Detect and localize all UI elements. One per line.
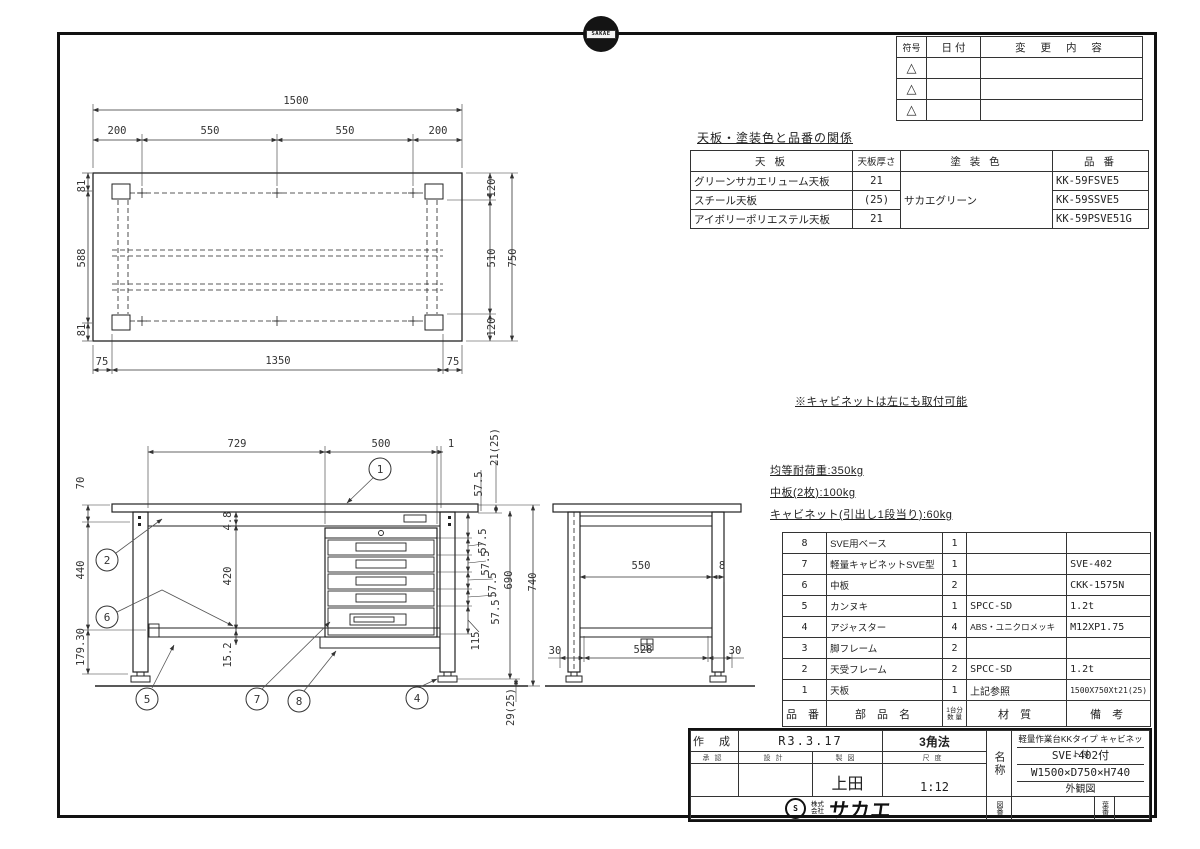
part-no-cell: 4 bbox=[783, 617, 827, 638]
finish-header-partno: 品 番 bbox=[1053, 151, 1149, 172]
part-no-cell: 2 bbox=[783, 659, 827, 680]
part-name-cell: 天受フレーム bbox=[827, 659, 943, 680]
parts-header-no: 品 番 bbox=[783, 701, 827, 727]
parts-row: 7 軽量キャビネットSVE型 1 SVE-402 bbox=[783, 554, 1151, 575]
balloon-leaders bbox=[116, 477, 437, 692]
dim-label: 750 bbox=[507, 249, 519, 268]
part-material-cell: SPCC-SD bbox=[967, 596, 1067, 617]
part-qty-cell: 1 bbox=[943, 596, 967, 617]
company-prefix-line1: 株式 bbox=[811, 801, 824, 808]
created-label: 作 成 bbox=[690, 730, 739, 752]
revision-date-cell bbox=[927, 58, 981, 79]
dim-label: 81 bbox=[76, 324, 88, 337]
finish-thickness-cell: (25) bbox=[853, 191, 901, 210]
part-material-cell bbox=[967, 638, 1067, 659]
dim-label: 1350 bbox=[265, 355, 290, 367]
dim-label: 21(25) bbox=[489, 428, 501, 466]
finish-thickness-cell: 21 bbox=[853, 172, 901, 191]
product-model: SVE-402付 bbox=[1017, 748, 1143, 765]
part-material-cell: SPCC-SD bbox=[967, 659, 1067, 680]
parts-row: 2 天受フレーム 2 SPCC-SD 1.2t bbox=[783, 659, 1151, 680]
top-view-dim-lines bbox=[82, 104, 518, 374]
dim-label: 1500 bbox=[283, 95, 308, 107]
name-label: 名称 bbox=[986, 730, 1012, 797]
revision-row: △ bbox=[897, 79, 1143, 100]
revision-triangle-icon: △ bbox=[897, 79, 927, 100]
revision-content-cell bbox=[981, 58, 1143, 79]
dim-label: 57.5 bbox=[473, 471, 485, 496]
parts-header-material: 材 質 bbox=[967, 701, 1067, 727]
dim-label: 29(25) bbox=[505, 688, 517, 726]
product-name-block: 軽量作業台KKタイプ キャビネット付 SVE-402付 W1500×D750×H… bbox=[1011, 730, 1150, 797]
revision-triangle-icon: △ bbox=[897, 58, 927, 79]
revision-row: △ bbox=[897, 58, 1143, 79]
top-view-geometry bbox=[93, 173, 462, 341]
part-remark-cell: M12XP1.75 bbox=[1067, 617, 1151, 638]
dim-label: 510 bbox=[486, 249, 498, 268]
dim-label: 57.5 bbox=[480, 550, 492, 575]
product-size: W1500×D750×H740 bbox=[1017, 765, 1143, 782]
dim-label: 200 bbox=[429, 125, 448, 137]
revision-date-cell bbox=[927, 100, 981, 121]
part-name-cell: 中板 bbox=[827, 575, 943, 596]
balloon-label: 7 bbox=[254, 693, 261, 706]
load-note: 均等耐荷重:350kg bbox=[770, 462, 864, 478]
part-no-cell: 8 bbox=[783, 533, 827, 554]
part-name-cell: 軽量キャビネットSVE型 bbox=[827, 554, 943, 575]
part-remark-cell: 1.2t bbox=[1067, 596, 1151, 617]
part-remark-cell: 1.2t bbox=[1067, 659, 1151, 680]
balloon-label: 8 bbox=[296, 695, 303, 708]
company-name: サカエ bbox=[827, 796, 894, 820]
dim-label: 30 bbox=[549, 645, 562, 657]
load-note: 中板(2枚):100kg bbox=[770, 484, 855, 500]
finish-top-cell: グリーンサカエリューム天板 bbox=[691, 172, 853, 191]
finish-header-thickness: 天板厚さ bbox=[853, 151, 901, 172]
parts-row: 6 中板 2 CKK-1575N bbox=[783, 575, 1151, 596]
part-remark-cell: 1500X750Xt21(25) bbox=[1067, 680, 1151, 701]
part-remark-cell bbox=[1067, 533, 1151, 554]
balloon-label: 2 bbox=[104, 554, 111, 567]
dim-label: 81 bbox=[76, 180, 88, 193]
company-logo-row: S 株式 会社 サカエ bbox=[690, 796, 987, 820]
drawing-type: 外観図 bbox=[1017, 782, 1143, 797]
parts-header-name: 部 品 名 bbox=[827, 701, 943, 727]
part-remark-cell: SVE-402 bbox=[1067, 554, 1151, 575]
part-name-cell: 天板 bbox=[827, 680, 943, 701]
finish-partno-cell: KK-59SSVE5 bbox=[1053, 191, 1149, 210]
drawing-number-cell bbox=[1011, 796, 1095, 820]
parts-header-qty-line1: 1台分 bbox=[944, 707, 965, 714]
front-view-dim-lines bbox=[82, 446, 540, 702]
dim-label: 729 bbox=[228, 438, 247, 450]
finish-header-color: 塗 装 色 bbox=[901, 151, 1053, 172]
part-name-cell: 脚フレーム bbox=[827, 638, 943, 659]
part-no-cell: 7 bbox=[783, 554, 827, 575]
revision-row: △ bbox=[897, 100, 1143, 121]
scale-value: 1:12 bbox=[882, 763, 987, 797]
parts-row: 3 脚フレーム 2 bbox=[783, 638, 1151, 659]
revision-header-date: 日 付 bbox=[927, 37, 981, 58]
dim-label: 57.5 bbox=[490, 599, 502, 624]
cabinet-note: ※キャビネットは左にも取付可能 bbox=[795, 393, 968, 409]
drafter-name: 上田 bbox=[812, 763, 883, 797]
dim-label: 1 bbox=[448, 438, 454, 450]
dim-label: 8 bbox=[719, 560, 725, 572]
finish-table: 天 板 天板厚さ 塗 装 色 品 番 グリーンサカエリューム天板 21 サカエグ… bbox=[690, 150, 1149, 229]
company-prefix-line2: 会社 bbox=[811, 808, 824, 815]
dim-label: 75 bbox=[447, 356, 460, 368]
finish-top-cell: スチール天板 bbox=[691, 191, 853, 210]
dim-label: 690 bbox=[503, 571, 515, 590]
balloon-label: 6 bbox=[104, 611, 111, 624]
dim-label: 57.5 bbox=[487, 572, 499, 597]
dim-label: 115 bbox=[470, 632, 482, 651]
dim-label: 30 bbox=[729, 645, 742, 657]
design-cell bbox=[738, 763, 813, 797]
revision-content-cell bbox=[981, 100, 1143, 121]
parts-header-remark: 備 考 bbox=[1067, 701, 1151, 727]
balloon-label: 1 bbox=[377, 463, 384, 476]
company-prefix: 株式 会社 bbox=[811, 801, 824, 815]
sheet-number-cell bbox=[1114, 796, 1150, 820]
dim-label: 550 bbox=[632, 560, 651, 572]
finish-partno-cell: KK-59PSVE51G bbox=[1053, 210, 1149, 229]
part-remark-cell bbox=[1067, 638, 1151, 659]
dim-label: 15.2 bbox=[222, 642, 234, 667]
part-qty-cell: 1 bbox=[943, 533, 967, 554]
dim-label: 120 bbox=[486, 179, 498, 198]
product-title: 軽量作業台KKタイプ キャビネット付 bbox=[1017, 732, 1143, 748]
part-no-cell: 3 bbox=[783, 638, 827, 659]
dim-label: 500 bbox=[372, 438, 391, 450]
side-view-geometry bbox=[545, 504, 755, 686]
revision-header-content: 変 更 内 容 bbox=[981, 37, 1143, 58]
part-remark-cell: CKK-1575N bbox=[1067, 575, 1151, 596]
part-no-cell: 1 bbox=[783, 680, 827, 701]
part-qty-cell: 2 bbox=[943, 575, 967, 596]
part-material-cell bbox=[967, 575, 1067, 596]
dim-label: 588 bbox=[76, 249, 88, 268]
part-qty-cell: 1 bbox=[943, 680, 967, 701]
parts-table: 8 SVE用ベース 1 7 軽量キャビネットSVE型 1 SVE-402 6 中… bbox=[782, 532, 1151, 727]
finish-header-top: 天 板 bbox=[691, 151, 853, 172]
finish-thickness-cell: 21 bbox=[853, 210, 901, 229]
dim-label: 740 bbox=[527, 573, 539, 592]
dim-label: 550 bbox=[336, 125, 355, 137]
title-block: 作 成 R3.3.17 3角法 承認 設計 製図 尺度 上田 1:12 S 株式… bbox=[688, 728, 1152, 822]
part-material-cell bbox=[967, 554, 1067, 575]
parts-header-qty: 1台分 数 量 bbox=[943, 701, 967, 727]
dim-label: 550 bbox=[201, 125, 220, 137]
drawing-sheet: SAKAE bbox=[0, 0, 1200, 849]
created-date: R3.3.17 bbox=[738, 730, 883, 752]
dim-label: 179.30 bbox=[75, 628, 87, 666]
dim-label: 75 bbox=[96, 356, 109, 368]
part-material-cell: ABS・ユニクロメッキ bbox=[967, 617, 1067, 638]
revision-table: 符号 日 付 変 更 内 容 △ △ △ bbox=[896, 36, 1143, 121]
projection-method: 3角法 bbox=[882, 730, 987, 752]
dim-label: 440 bbox=[75, 561, 87, 580]
revision-triangle-icon: △ bbox=[897, 100, 927, 121]
part-qty-cell: 2 bbox=[943, 659, 967, 680]
part-qty-cell: 2 bbox=[943, 638, 967, 659]
revision-header-symbol: 符号 bbox=[897, 37, 927, 58]
balloon-label: 4 bbox=[414, 692, 421, 705]
finish-partno-cell: KK-59FSVE5 bbox=[1053, 172, 1149, 191]
parts-row: 4 アジャスター 4 ABS・ユニクロメッキ M12XP1.75 bbox=[783, 617, 1151, 638]
sakae-logo-icon: S bbox=[785, 798, 806, 819]
sheet-number-label: 葉番 bbox=[1094, 796, 1115, 820]
part-name-cell: カンヌキ bbox=[827, 596, 943, 617]
approval-cell bbox=[690, 763, 739, 797]
parts-row: 5 カンヌキ 1 SPCC-SD 1.2t bbox=[783, 596, 1151, 617]
part-material-cell: 上記参照 bbox=[967, 680, 1067, 701]
finish-color-cell: サカエグリーン bbox=[901, 172, 1053, 229]
part-no-cell: 5 bbox=[783, 596, 827, 617]
dim-label: 200 bbox=[108, 125, 127, 137]
finish-top-cell: アイボリーポリエステル天板 bbox=[691, 210, 853, 229]
parts-header-qty-line2: 数 量 bbox=[944, 714, 965, 721]
revision-date-cell bbox=[927, 79, 981, 100]
part-name-cell: アジャスター bbox=[827, 617, 943, 638]
part-no-cell: 6 bbox=[783, 575, 827, 596]
part-material-cell bbox=[967, 533, 1067, 554]
dim-label: 4.8 bbox=[222, 512, 234, 531]
finish-table-title: 天板・塗装色と品番の関係 bbox=[697, 129, 853, 146]
dim-label: 57.5 bbox=[477, 528, 489, 553]
dim-label: 70 bbox=[75, 477, 87, 490]
dim-label: 528 bbox=[634, 644, 653, 656]
front-view-geometry bbox=[95, 504, 528, 686]
part-name-cell: SVE用ベース bbox=[827, 533, 943, 554]
drawing-number-label: 図番 bbox=[986, 796, 1012, 820]
balloon-label: 5 bbox=[144, 693, 151, 706]
parts-row: 1 天板 1 上記参照 1500X750Xt21(25) bbox=[783, 680, 1151, 701]
dim-label: 420 bbox=[222, 567, 234, 586]
part-qty-cell: 1 bbox=[943, 554, 967, 575]
part-qty-cell: 4 bbox=[943, 617, 967, 638]
parts-row: 8 SVE用ベース 1 bbox=[783, 533, 1151, 554]
finish-row: グリーンサカエリューム天板 21 サカエグリーン KK-59FSVE5 bbox=[691, 172, 1149, 191]
load-note: キャビネット(引出し1段当り):60kg bbox=[770, 506, 952, 522]
revision-content-cell bbox=[981, 79, 1143, 100]
dim-label: 120 bbox=[486, 318, 498, 337]
